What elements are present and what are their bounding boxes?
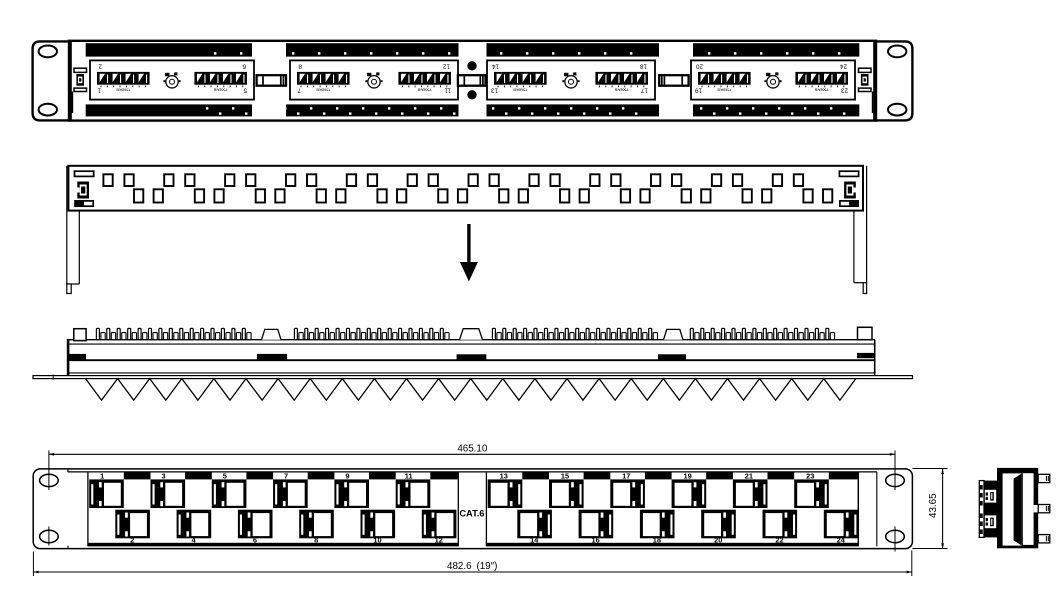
svg-text:5: 5	[243, 87, 247, 94]
svg-text:15: 15	[561, 472, 569, 481]
svg-text:T568A/B: T568A/B	[614, 88, 629, 92]
svg-text:T568A/B: T568A/B	[513, 88, 528, 92]
svg-text:21: 21	[745, 472, 753, 481]
svg-text:465.10: 465.10	[457, 444, 488, 455]
svg-text:T568A/B: T568A/B	[116, 88, 131, 92]
svg-text:T568A/B: T568A/B	[417, 88, 432, 92]
svg-text:18: 18	[640, 63, 647, 70]
svg-text:13: 13	[500, 472, 508, 481]
svg-text:17: 17	[622, 472, 630, 481]
svg-text:8: 8	[314, 536, 318, 545]
svg-text:13: 13	[491, 87, 498, 94]
svg-text:12: 12	[443, 63, 450, 70]
svg-text:16: 16	[591, 536, 599, 545]
svg-text:3: 3	[161, 472, 165, 481]
svg-text:20: 20	[696, 63, 703, 70]
svg-text:1: 1	[100, 472, 104, 481]
svg-text:17: 17	[641, 87, 648, 94]
svg-text:11: 11	[405, 472, 413, 481]
svg-text:11: 11	[444, 87, 451, 94]
svg-text:43.65: 43.65	[928, 493, 939, 518]
svg-text:18: 18	[653, 536, 661, 545]
svg-text:14: 14	[492, 63, 499, 70]
svg-text:23: 23	[841, 87, 848, 94]
svg-text:24: 24	[840, 63, 847, 70]
svg-text:19: 19	[695, 87, 702, 94]
svg-text:T568A/B: T568A/B	[213, 88, 228, 92]
svg-text:14: 14	[530, 536, 539, 545]
svg-text:24: 24	[837, 536, 846, 545]
svg-text:6: 6	[253, 536, 257, 545]
svg-text:8: 8	[298, 63, 302, 70]
svg-text:6: 6	[242, 63, 246, 70]
svg-text:22: 22	[775, 536, 783, 545]
svg-text:1: 1	[97, 87, 101, 94]
svg-text:7: 7	[297, 87, 301, 94]
svg-text:20: 20	[714, 536, 722, 545]
svg-text:19: 19	[683, 472, 691, 481]
svg-text:T568A/B: T568A/B	[814, 88, 829, 92]
svg-text:T568A/B: T568A/B	[316, 88, 331, 92]
svg-text:12: 12	[435, 536, 443, 545]
svg-text:5: 5	[223, 472, 227, 481]
svg-text:9: 9	[345, 472, 349, 481]
svg-text:CAT.6: CAT.6	[459, 509, 484, 519]
svg-text:7: 7	[284, 472, 288, 481]
svg-text:2: 2	[98, 63, 102, 70]
svg-text:T568A/B: T568A/B	[717, 88, 732, 92]
svg-text:2: 2	[130, 536, 134, 545]
svg-text:482.6 (19″): 482.6 (19″)	[447, 561, 497, 572]
svg-text:23: 23	[806, 472, 814, 481]
svg-text:10: 10	[373, 536, 381, 545]
